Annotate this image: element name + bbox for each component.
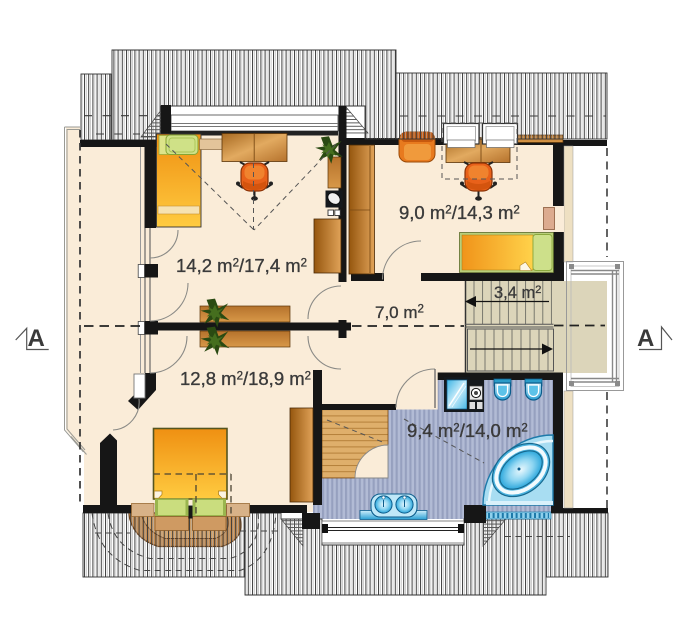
svg-text:9,0 m2/14,3 m2: 9,0 m2/14,3 m2 (399, 202, 520, 223)
svg-text:9,4 m2/14,0 m2: 9,4 m2/14,0 m2 (407, 420, 528, 441)
svg-text:14,2 m2/17,4 m2: 14,2 m2/17,4 m2 (176, 255, 307, 276)
svg-text:A: A (28, 325, 45, 352)
svg-text:12,8 m2/18,9 m2: 12,8 m2/18,9 m2 (180, 368, 311, 389)
svg-text:3,4 m2: 3,4 m2 (494, 284, 541, 302)
svg-text:7,0 m2: 7,0 m2 (375, 303, 424, 322)
svg-text:A: A (637, 325, 654, 352)
